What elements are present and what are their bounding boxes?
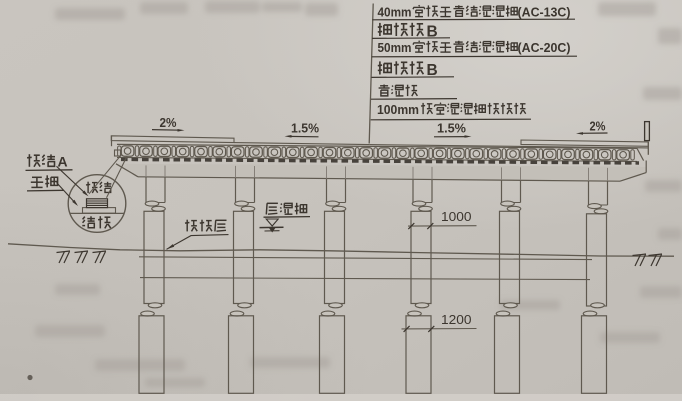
svg-text:1.5%: 1.5% xyxy=(291,121,319,135)
svg-text:2%: 2% xyxy=(160,115,177,130)
svg-text:1000: 1000 xyxy=(441,209,472,224)
svg-text:2%: 2% xyxy=(590,119,606,134)
svg-text:40mm: 40mm xyxy=(378,6,412,20)
svg-text:1.5%: 1.5% xyxy=(437,122,466,136)
svg-text:(AC-20C): (AC-20C) xyxy=(518,41,571,55)
svg-text:A: A xyxy=(58,154,68,170)
svg-text:(AC-13C): (AC-13C) xyxy=(518,6,571,20)
svg-text:1200: 1200 xyxy=(441,312,472,327)
svg-text:100mm: 100mm xyxy=(377,103,419,117)
svg-text:50mm: 50mm xyxy=(378,41,412,55)
